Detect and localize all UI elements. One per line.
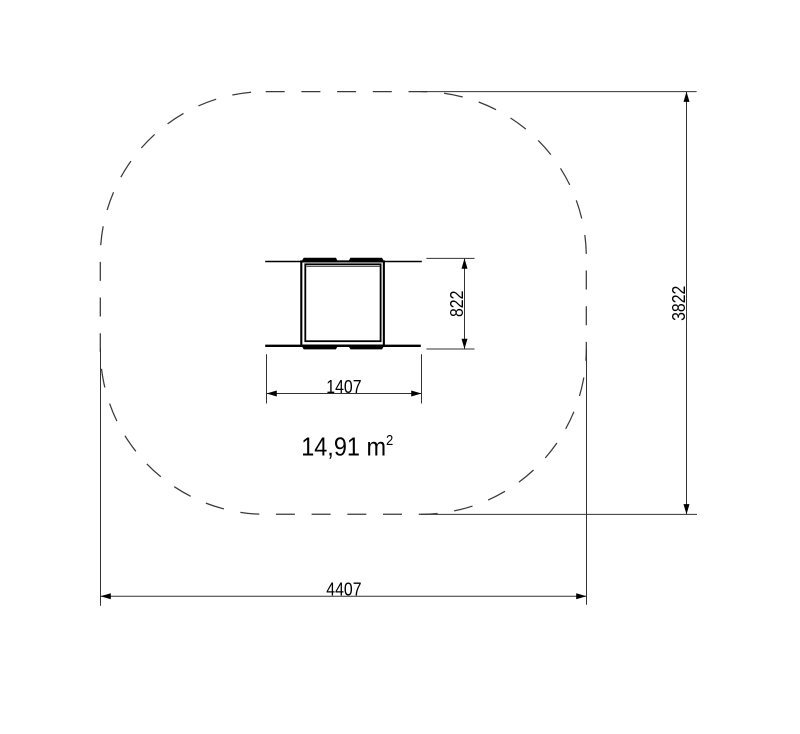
svg-text:4407: 4407 bbox=[326, 578, 361, 599]
svg-text:3822: 3822 bbox=[668, 286, 689, 321]
svg-text:1407: 1407 bbox=[326, 376, 361, 397]
svg-text:822: 822 bbox=[446, 291, 467, 317]
svg-text:14,91 m2: 14,91 m2 bbox=[301, 431, 393, 461]
